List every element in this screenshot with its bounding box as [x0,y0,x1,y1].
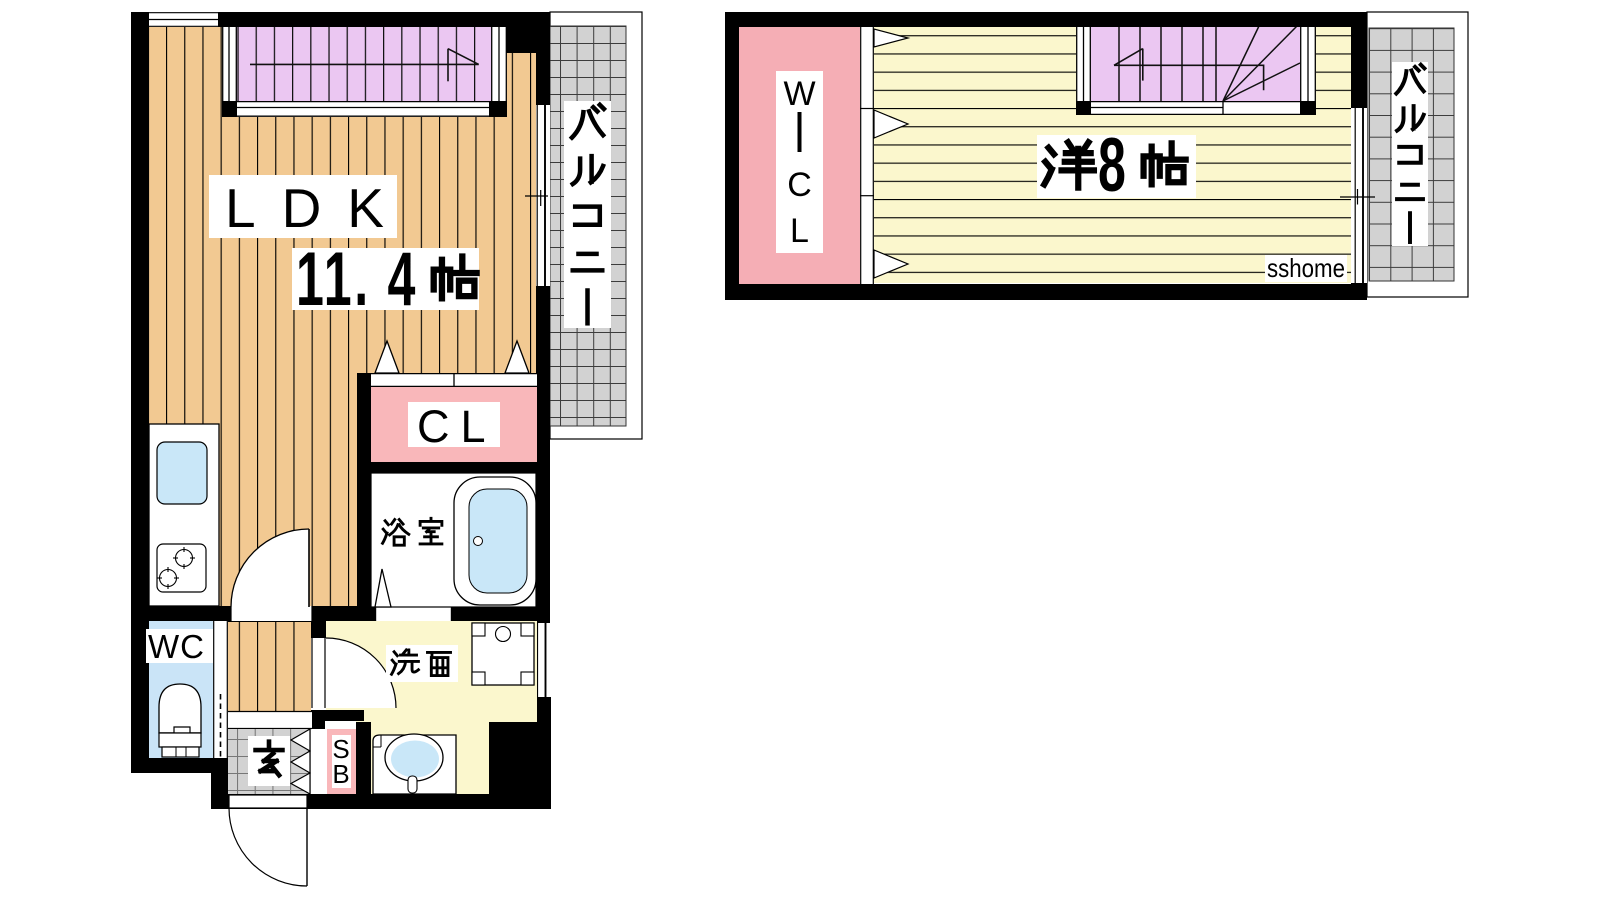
svg-text:LDK: LDK [225,177,410,239]
svg-text:B: B [332,759,349,789]
svg-text:CL: CL [417,401,497,452]
svg-text:C: C [787,166,812,204]
svg-text:WC: WC [148,628,205,665]
svg-text:L: L [790,212,809,250]
svg-text:W: W [783,75,815,113]
svg-text:11. 4: 11. 4 [296,237,418,322]
svg-text:8: 8 [1098,123,1126,208]
svg-text:sshome: sshome [1267,253,1345,283]
